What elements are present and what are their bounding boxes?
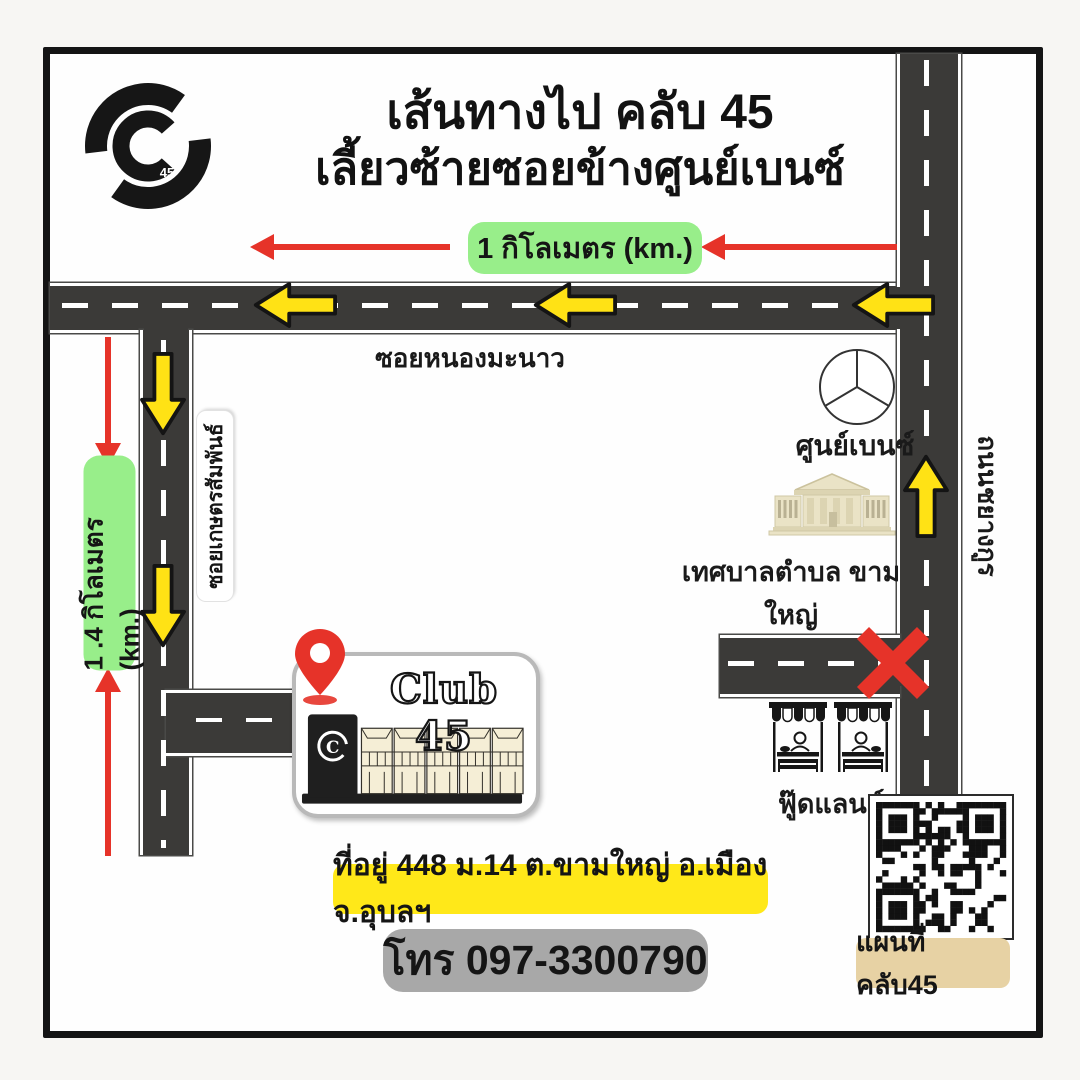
road-centerline (62, 303, 888, 308)
page-title: เส้นทางไป คลับ 45 เลี้ยวซ้ายซอยข้างศูนย์… (120, 84, 1040, 196)
road-junction-patch (144, 324, 188, 334)
red-arrowhead-left-icon (250, 234, 274, 260)
benz-star-icon (816, 346, 898, 428)
arrow-left-icon (251, 280, 337, 330)
road-label-soi-nong-manao: ซอยหนองมะนาว (330, 338, 610, 379)
municipality-building-icon (766, 472, 898, 536)
red-arrow-line (723, 244, 897, 250)
arrow-left-icon (849, 280, 935, 330)
qr-code (868, 794, 1014, 940)
arrow-left-icon (531, 280, 617, 330)
market-stall-icon (833, 702, 893, 776)
map-pin-icon (293, 627, 347, 707)
title-line2: เลี้ยวซ้ายซอยข้างศูนย์เบนซ์ (120, 142, 1040, 196)
market-stall-icon (768, 702, 828, 776)
distance-label-top: 1 กิโลเมตร (km.) (468, 222, 702, 274)
no-entry-x-icon (853, 623, 933, 703)
red-arrow-line (272, 244, 450, 250)
red-arrowhead-up-icon (95, 668, 121, 692)
title-line1: เส้นทางไป คลับ 45 (120, 84, 1040, 142)
arrow-down-icon (138, 352, 188, 438)
road-label-soi-kaset-samphan: ซอยเกษตรสัมพันธ์ (197, 411, 233, 601)
red-arrow-line (105, 337, 111, 445)
club-logo-letter: C (326, 737, 339, 757)
road-label-chayangkun: ถนนชยางกูร (968, 414, 1008, 599)
phone-label: โทร 097-3300790 (383, 929, 708, 992)
benz-center-label: ศูนย์เบนซ์ (780, 424, 930, 468)
road-centerline (196, 718, 288, 722)
club-name: Club 45 (358, 666, 530, 760)
red-arrowhead-left-icon (701, 234, 725, 260)
red-arrow-line (105, 690, 111, 856)
distance-label-left: 1 .4 กิโลเมตร (km.) (84, 456, 136, 671)
address-label: ที่อยู่ 448 ม.14 ต.ขามใหญ่ อ.เมือง จ.อุบ… (333, 864, 768, 914)
arrow-down-icon (138, 564, 188, 650)
route-map: 45 เส้นทางไป คลับ 45 เลี้ยวซ้ายซอยข้างศู… (0, 0, 1080, 1080)
qr-caption: แผนที่ คลับ45 (856, 938, 1010, 988)
